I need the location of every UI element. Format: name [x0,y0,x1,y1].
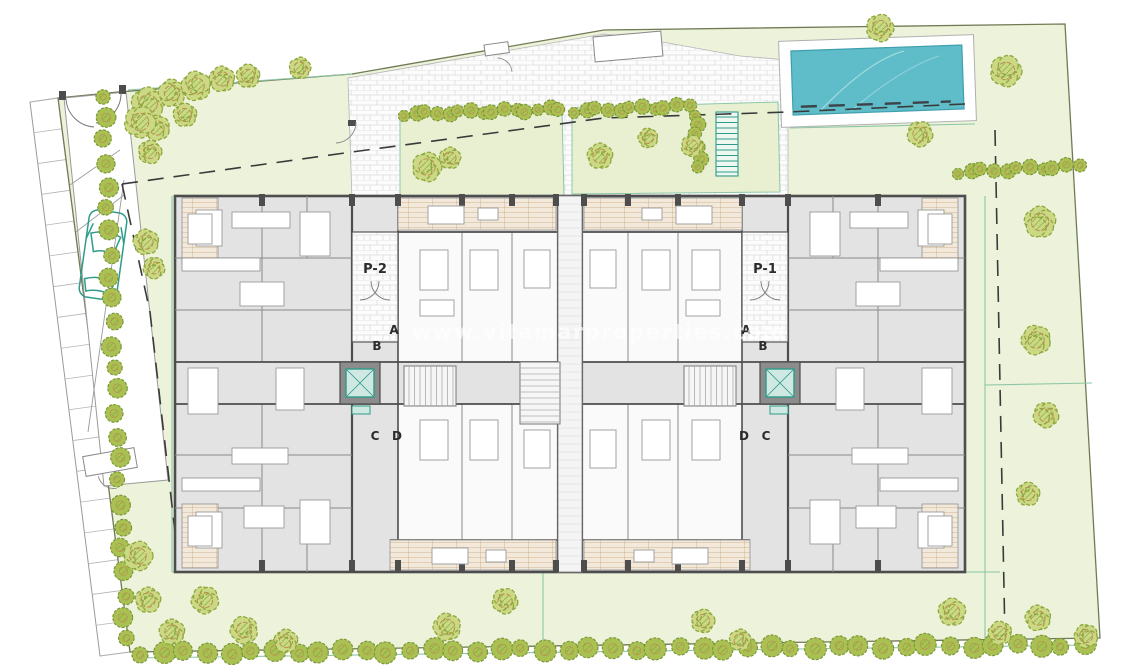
tree-icon [143,258,165,279]
stair-right-c-label: C [762,429,771,443]
portal-left-label: P-2 [363,262,387,277]
tree-icon [209,66,234,91]
central-corridor [558,196,582,572]
tree-icon [236,64,260,87]
site-plan-page: P-2 P-1 A B C D A B D C www.vitamarprope… [0,0,1130,665]
portal-right-label: P-1 [753,262,777,277]
site-plan-drawing: P-2 P-1 A B C D A B D C www.vitamarprope… [0,0,1130,665]
stair-left-a-label: A [389,323,399,337]
garden-staircase [716,112,738,176]
tree-icon [289,57,311,78]
stair-right-d-label: D [739,429,749,443]
stair-left-d-label: D [392,429,402,443]
watermark-text: www.vitamarproperties.com [412,320,786,344]
tree-icon [181,71,210,100]
stair-left-c-label: C [371,429,380,443]
building-footprint [175,194,965,572]
stair-left-b-label: B [372,339,381,353]
swimming-pool [779,35,977,128]
